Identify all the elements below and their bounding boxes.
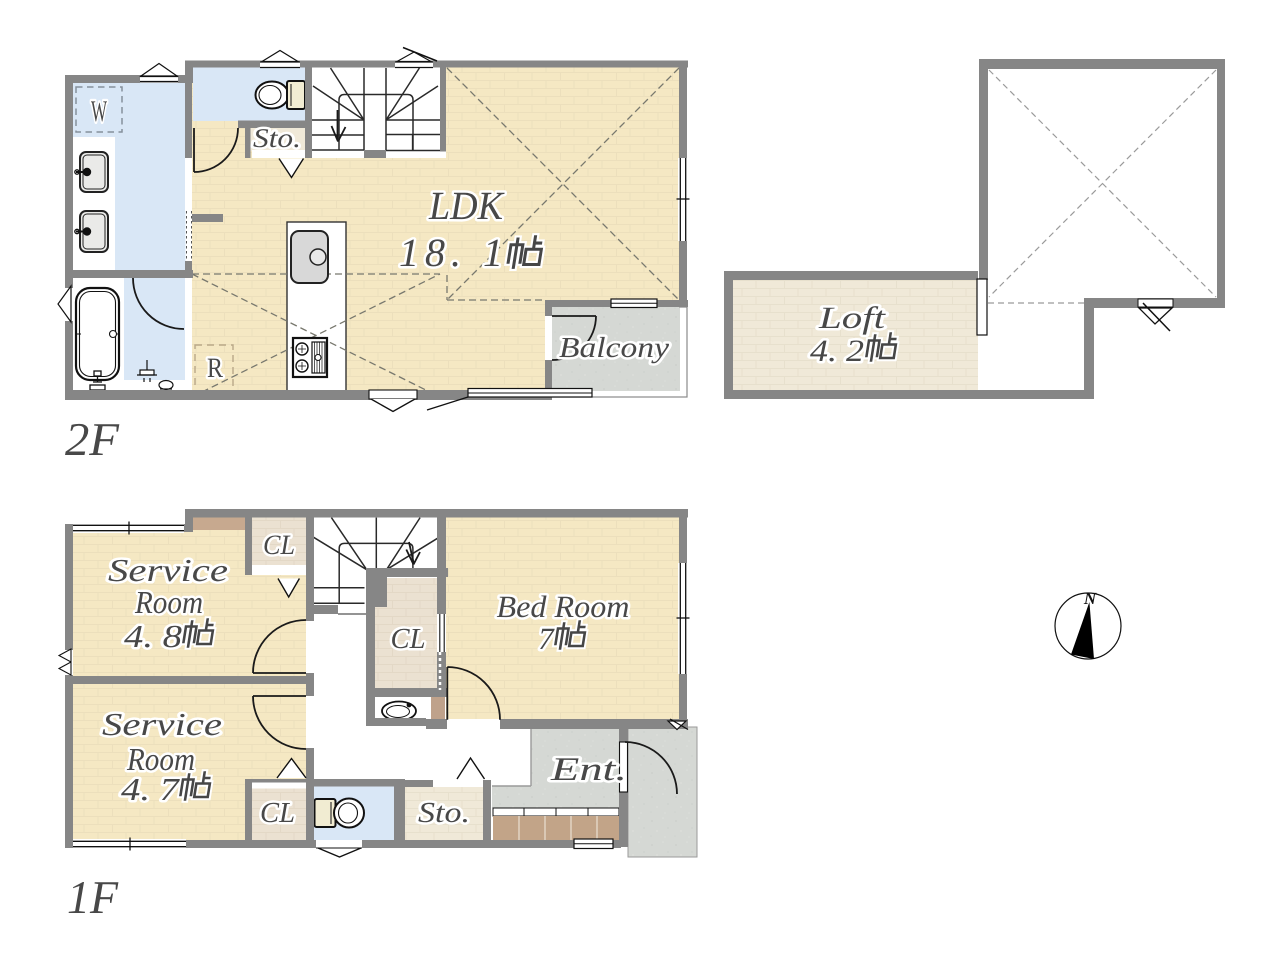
svg-text:4. 7: 4. 7	[121, 771, 181, 807]
svg-text:Service: Service	[108, 552, 228, 588]
svg-text:7: 7	[538, 621, 555, 656]
svg-text:N: N	[1083, 589, 1097, 608]
svg-text:Bed Room: Bed Room	[497, 589, 630, 624]
svg-text:Loft: Loft	[818, 300, 887, 335]
svg-text:2F: 2F	[65, 414, 120, 466]
svg-text:Ent.: Ent.	[550, 752, 627, 788]
svg-text:Sto.: Sto.	[253, 123, 301, 153]
svg-text:CL: CL	[391, 623, 426, 655]
svg-text:4. 2: 4. 2	[810, 333, 864, 368]
svg-text:1F: 1F	[67, 872, 119, 924]
svg-text:CL: CL	[260, 797, 295, 829]
svg-text:CL: CL	[263, 530, 295, 561]
svg-text:Service: Service	[102, 706, 222, 742]
svg-text:Balcony: Balcony	[559, 332, 669, 364]
svg-text:Room: Room	[134, 584, 203, 620]
svg-text:Sto.: Sto.	[418, 797, 470, 829]
svg-text:R: R	[207, 353, 223, 384]
svg-text:LDK: LDK	[428, 183, 505, 228]
svg-text:4. 8: 4. 8	[124, 618, 182, 654]
svg-text:18. 1: 18. 1	[399, 230, 503, 275]
svg-text:W: W	[91, 95, 107, 128]
